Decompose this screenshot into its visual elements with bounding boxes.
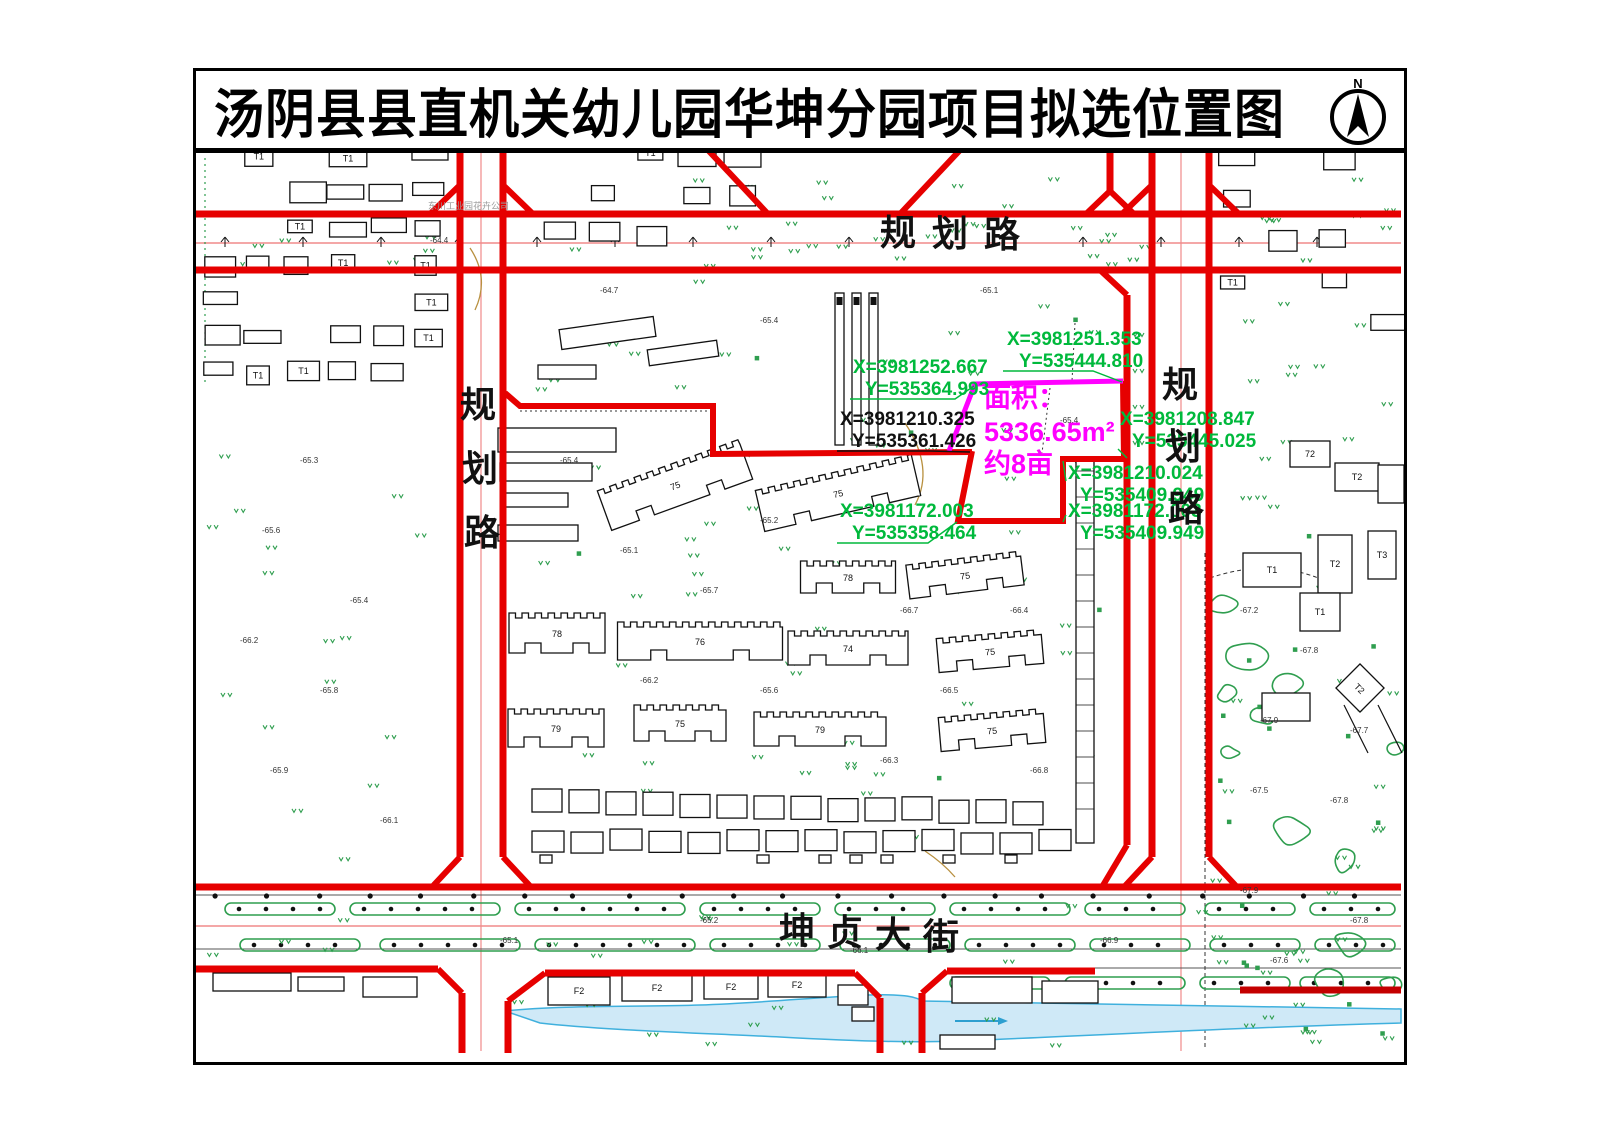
- residential-block: 75: [936, 629, 1044, 672]
- svg-text:-67.8: -67.8: [1350, 916, 1369, 925]
- svg-text:-65.1: -65.1: [500, 936, 519, 945]
- svg-text:路: 路: [464, 512, 501, 553]
- coord-label-6: X=3981172.003Y=535358.464: [837, 501, 977, 544]
- parcel-area-mu: 约8亩: [984, 448, 1053, 479]
- svg-text:-67.6: -67.6: [1270, 956, 1289, 965]
- svg-text:T2: T2: [1352, 472, 1363, 482]
- residential-block: 75: [938, 708, 1046, 751]
- svg-text:-65.4: -65.4: [1060, 416, 1079, 425]
- svg-text:79: 79: [815, 725, 825, 735]
- svg-text:规: 规: [880, 212, 916, 253]
- svg-text:-66.1: -66.1: [380, 816, 399, 825]
- svg-text:T3: T3: [1377, 550, 1388, 560]
- svg-text:T1: T1: [426, 297, 437, 307]
- svg-text:75: 75: [675, 719, 685, 729]
- svg-text:T1: T1: [253, 370, 264, 380]
- company-label: 东川工业园花卉公司: [428, 200, 509, 211]
- svg-text:-65.1: -65.1: [980, 286, 999, 295]
- svg-text:路: 路: [984, 214, 1021, 255]
- svg-text:-66.9: -66.9: [1100, 936, 1119, 945]
- residential-block: 74: [788, 631, 908, 665]
- svg-text:T2: T2: [1330, 559, 1341, 569]
- svg-text:F2: F2: [574, 986, 585, 996]
- title-bar: 汤阴县县直机关幼儿园华坤分园项目拟选位置图 N: [196, 71, 1404, 153]
- coord-label-1: X=3981251.353Y=535444.810: [1003, 329, 1143, 382]
- svg-text:-65.9: -65.9: [270, 766, 289, 775]
- svg-text:78: 78: [552, 629, 562, 639]
- svg-text:75: 75: [987, 726, 998, 737]
- svg-text:坤: 坤: [779, 910, 815, 951]
- svg-text:-65.6: -65.6: [760, 686, 779, 695]
- svg-text:T1: T1: [343, 153, 354, 163]
- spot-elevations: -65.3-65.6-65.4-66.2-65.8-65.9-66.1-65.4…: [240, 236, 1369, 965]
- coord-label-2: X=3981252.667Y=535364.993: [850, 357, 989, 400]
- svg-text:规: 规: [460, 384, 496, 425]
- svg-text:-65.2: -65.2: [760, 516, 779, 525]
- svg-text:-65.4: -65.4: [760, 316, 779, 325]
- svg-text:X=3981251.353: X=3981251.353: [1007, 329, 1142, 350]
- svg-text:T1: T1: [338, 258, 349, 268]
- svg-text:Y=535444.810: Y=535444.810: [1019, 351, 1143, 372]
- parcel-area-value: 5336.65m²: [984, 417, 1115, 447]
- svg-text:76: 76: [695, 637, 705, 647]
- svg-text:78: 78: [843, 573, 853, 583]
- svg-text:T1: T1: [298, 366, 309, 376]
- north-arrow-icon: N: [1322, 75, 1394, 149]
- svg-text:划: 划: [932, 213, 968, 254]
- svg-text:-66.8: -66.8: [1030, 766, 1049, 775]
- svg-text:-66.7: -66.7: [900, 606, 919, 615]
- svg-text:X=3981210.325: X=3981210.325: [840, 409, 975, 430]
- svg-text:F2: F2: [792, 980, 803, 990]
- svg-text:Y=535361.426: Y=535361.426: [852, 431, 976, 452]
- svg-text:-65.4: -65.4: [560, 456, 579, 465]
- svg-text:75: 75: [960, 570, 971, 581]
- svg-text:-64.7: -64.7: [600, 286, 619, 295]
- svg-text:-64.4: -64.4: [430, 236, 449, 245]
- svg-text:路: 路: [1168, 488, 1205, 529]
- svg-text:N: N: [1353, 76, 1362, 91]
- svg-text:-67.8: -67.8: [1300, 646, 1319, 655]
- residential-block: 79: [754, 712, 886, 746]
- svg-text:Y=535358.464: Y=535358.464: [852, 523, 977, 544]
- svg-text:-66.5: -66.5: [940, 686, 959, 695]
- residential-block: 78: [801, 561, 896, 593]
- svg-text:-66.2: -66.2: [640, 676, 659, 685]
- green-patches: [1209, 595, 1404, 996]
- map-sheet: 汤阴县县直机关幼儿园华坤分园项目拟选位置图 N T1T1T1T1T1T1T1T1…: [193, 68, 1407, 1065]
- svg-text:-66.1: -66.1: [850, 946, 869, 955]
- svg-text:-66.4: -66.4: [1010, 606, 1029, 615]
- svg-text:T1: T1: [1267, 565, 1278, 575]
- svg-text:T1: T1: [1315, 607, 1326, 617]
- svg-text:X=3981172.003: X=3981172.003: [840, 501, 974, 522]
- svg-text:F2: F2: [726, 982, 737, 992]
- parcel-area-title: 面积：: [984, 383, 1065, 413]
- svg-text:划: 划: [1165, 426, 1201, 467]
- svg-text:-65.7: -65.7: [700, 586, 719, 595]
- svg-text:-65.4: -65.4: [350, 596, 369, 605]
- svg-text:-67.7: -67.7: [1350, 726, 1369, 735]
- svg-text:T1: T1: [1227, 277, 1238, 287]
- svg-text:-67.8: -67.8: [1330, 796, 1349, 805]
- svg-text:T1: T1: [423, 333, 434, 343]
- svg-text:79: 79: [551, 724, 561, 734]
- svg-text:74: 74: [843, 644, 853, 654]
- svg-text:-67.5: -67.5: [1250, 786, 1269, 795]
- svg-text:-65.8: -65.8: [320, 686, 339, 695]
- svg-text:-66.2: -66.2: [240, 636, 259, 645]
- residential-block: 76: [618, 622, 783, 660]
- svg-text:规: 规: [1162, 364, 1198, 405]
- svg-text:72: 72: [1305, 449, 1315, 459]
- svg-text:划: 划: [462, 448, 498, 489]
- svg-text:T1: T1: [295, 221, 306, 231]
- svg-text:大: 大: [875, 914, 911, 955]
- svg-text:F2: F2: [652, 983, 663, 993]
- svg-text:-66.3: -66.3: [880, 756, 899, 765]
- svg-text:-65.6: -65.6: [262, 526, 281, 535]
- svg-text:-67.9: -67.9: [1240, 886, 1259, 895]
- residential-block: 78: [509, 613, 605, 653]
- svg-text:Y=535364.993: Y=535364.993: [865, 379, 989, 400]
- page-title: 汤阴县县直机关幼儿园华坤分园项目拟选位置图: [214, 71, 1285, 147]
- svg-text:X=3981252.667: X=3981252.667: [853, 357, 988, 378]
- site-map: T1T1T1T1T1T1T1T1T1T1T1757578767875747975…: [196, 148, 1404, 1055]
- svg-text:-67.2: -67.2: [1240, 606, 1259, 615]
- page: { "title": {"text": "汤阴县县直机关幼儿园华坤分园项目拟选位…: [0, 0, 1600, 1130]
- svg-text:-65.1: -65.1: [620, 546, 639, 555]
- svg-text:-65.3: -65.3: [300, 456, 319, 465]
- residential-block: 79: [508, 709, 604, 747]
- residential-block: 75: [634, 705, 726, 741]
- svg-text:-67.9: -67.9: [1260, 716, 1279, 725]
- coord-label-3: X=3981210.325Y=535361.426: [837, 409, 976, 452]
- svg-text:街: 街: [922, 916, 959, 957]
- svg-text:-65.2: -65.2: [700, 916, 719, 925]
- residential-block: 75: [906, 551, 1024, 599]
- svg-text:75: 75: [985, 647, 996, 658]
